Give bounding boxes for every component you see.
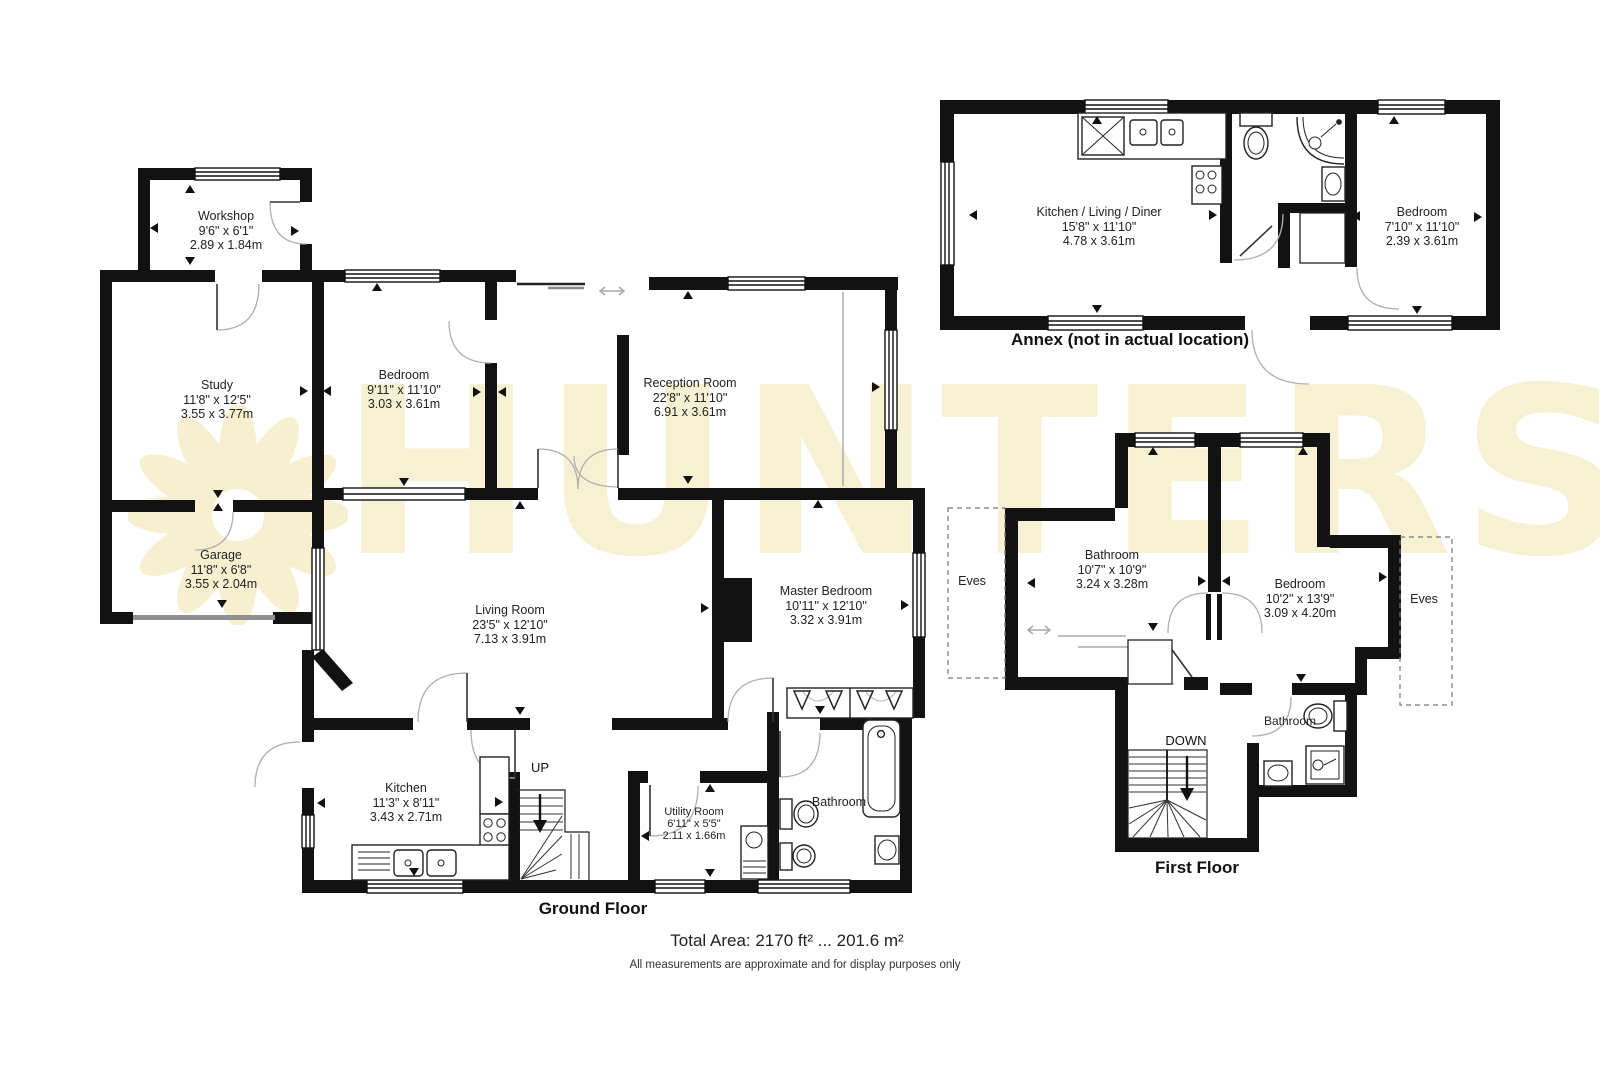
measure-marker-icon [1148,447,1158,455]
stairs-down-label: DOWN [1165,733,1206,748]
eves-label-left: Eves [958,574,986,588]
measure-marker-icon [1092,305,1102,313]
room-label-ff-bathroom-small: Bathroom [1264,714,1316,728]
measure-marker-icon [101,385,109,395]
eves-label-right: Eves [1410,592,1438,606]
measure-marker-icon [1092,116,1102,124]
measure-marker-icon [317,798,325,808]
measure-marker-icon [1379,572,1387,582]
measure-marker-icon [217,600,227,608]
floorplan-page: HUNTERS [0,0,1600,1084]
measure-marker-icon [813,500,823,508]
room-label-workshop: Workshop 9'6" x 6'1" 2.89 x 1.84m [190,209,262,253]
room-label-study: Study 11'8" x 12'5" 3.55 x 3.77m [181,378,253,422]
room-label-master: Master Bedroom 10'11" x 12'10" 3.32 x 3.… [780,584,872,628]
measure-marker-icon [1474,212,1482,222]
measure-marker-icon [498,387,506,397]
measure-marker-icon [372,283,382,291]
measure-marker-icon [473,387,481,397]
measure-marker-icon [705,784,715,792]
measure-marker-icon [683,291,693,299]
room-label-kitchen: Kitchen 11'3" x 8'11" 3.43 x 2.71m [370,781,442,825]
room-label-bathroom-gf: Bathroom [812,795,866,809]
measure-marker-icon [1298,447,1308,455]
measure-marker-icon [185,185,195,193]
measure-marker-icon [213,490,223,498]
measure-marker-icon [901,600,909,610]
measure-marker-icon [1027,578,1035,588]
room-label-utility: Utility Room 6'11" x 5'5" 2.11 x 1.66m [663,806,726,842]
measure-marker-icon [969,210,977,220]
measure-marker-icon [815,706,825,714]
disclaimer-text: All measurements are approximate and for… [629,959,960,971]
total-area-text: Total Area: 2170 ft² ... 201.6 m² [670,931,903,951]
ground-floor-title: Ground Floor [539,899,648,919]
measure-marker-icon [1389,116,1399,124]
measure-marker-icon [101,563,109,573]
measure-marker-icon [872,382,880,392]
measure-marker-icon [185,257,195,265]
measure-marker-icon [1412,306,1422,314]
measure-marker-icon [515,501,525,509]
measure-marker-icon [495,797,503,807]
measure-marker-icon [1296,674,1306,682]
measure-marker-icon [1148,623,1158,631]
measure-marker-icon [409,868,419,876]
room-label-reception: Reception Room 22'8" x 11'10" 6.91 x 3.6… [643,376,736,420]
annex-title: Annex (not in actual location) [1011,330,1249,350]
room-label-annex-kld: Kitchen / Living / Diner 15'8" x 11'10" … [1036,205,1161,249]
measure-marker-icon [515,707,525,715]
measure-marker-icon [323,386,331,396]
measure-marker-icon [300,386,308,396]
measure-marker-icon [1352,211,1360,221]
measure-marker-icon [1198,576,1206,586]
measure-marker-icon [1222,576,1230,586]
measure-marker-icon [213,503,223,511]
room-label-ff-bathroom: Bathroom 10'7" x 10'9" 3.24 x 3.28m [1076,548,1148,592]
measure-marker-icon [705,869,715,877]
room-label-living: Living Room 23'5" x 12'10" 7.13 x 3.91m [472,603,548,647]
measure-marker-icon [291,226,299,236]
room-label-annex-bedroom: Bedroom 7'10" x 11'10" 2.39 x 3.61m [1385,205,1460,249]
room-label-bedroom-gf: Bedroom 9'11" x 11'10" 3.03 x 3.61m [367,368,441,412]
room-label-ff-bedroom: Bedroom 10'2" x 13'9" 3.09 x 4.20m [1264,577,1336,621]
measure-marker-icon [150,223,158,233]
measure-marker-icon [1209,210,1217,220]
measure-marker-icon [683,476,693,484]
measure-marker-icon [701,603,709,613]
stairs-up-label: UP [531,760,549,775]
first-floor-title: First Floor [1155,858,1239,878]
room-label-garage: Garage 11'8" x 6'8" 3.55 x 2.04m [185,548,257,592]
measure-marker-icon [641,831,649,841]
measure-marker-icon [399,478,409,486]
